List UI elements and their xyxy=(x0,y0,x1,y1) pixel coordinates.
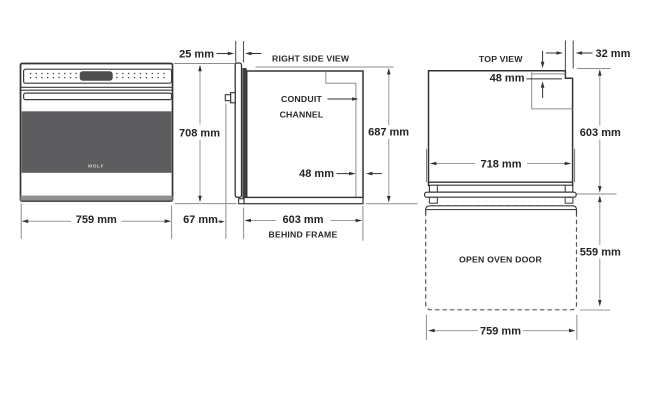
svg-text:CHANNEL: CHANNEL xyxy=(280,109,324,119)
svg-text:48 mm: 48 mm xyxy=(299,168,334,180)
svg-text:25 mm: 25 mm xyxy=(179,48,214,60)
svg-text:759 mm: 759 mm xyxy=(480,326,521,338)
svg-text:687 mm: 687 mm xyxy=(368,127,409,139)
svg-text:CONDUIT: CONDUIT xyxy=(281,94,322,104)
svg-text:RIGHT SIDE VIEW: RIGHT SIDE VIEW xyxy=(272,54,350,64)
svg-text:OPEN OVEN DOOR: OPEN OVEN DOOR xyxy=(459,255,542,265)
svg-text:603 mm: 603 mm xyxy=(580,127,621,139)
svg-text:603 mm: 603 mm xyxy=(283,214,324,226)
svg-text:BEHIND FRAME: BEHIND FRAME xyxy=(268,229,337,239)
svg-text:TOP VIEW: TOP VIEW xyxy=(479,54,523,64)
svg-text:559 mm: 559 mm xyxy=(580,247,621,259)
svg-text:WOLF: WOLF xyxy=(88,164,104,169)
svg-text:48 mm: 48 mm xyxy=(490,73,525,85)
svg-text:32 mm: 32 mm xyxy=(596,48,631,60)
svg-text:759 mm: 759 mm xyxy=(76,214,117,226)
svg-text:67 mm: 67 mm xyxy=(183,214,218,226)
svg-text:718 mm: 718 mm xyxy=(481,158,522,170)
svg-text:708 mm: 708 mm xyxy=(179,127,220,139)
